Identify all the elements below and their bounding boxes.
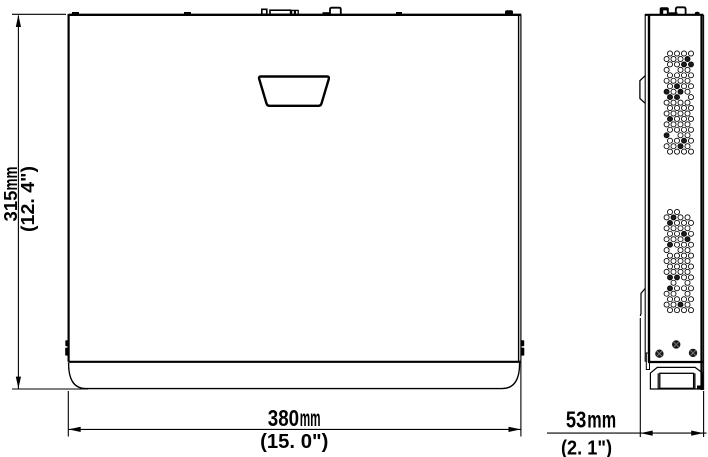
svg-text:(2. 1"): (2. 1") <box>561 438 612 457</box>
svg-text:(15. 0"): (15. 0") <box>260 431 328 453</box>
svg-text:(12. 4"): (12. 4") <box>17 166 38 232</box>
svg-text:380: 380 <box>268 405 299 431</box>
svg-text:mm: mm <box>300 405 321 431</box>
svg-text:mm: mm <box>587 407 616 433</box>
svg-text:53: 53 <box>566 407 586 433</box>
